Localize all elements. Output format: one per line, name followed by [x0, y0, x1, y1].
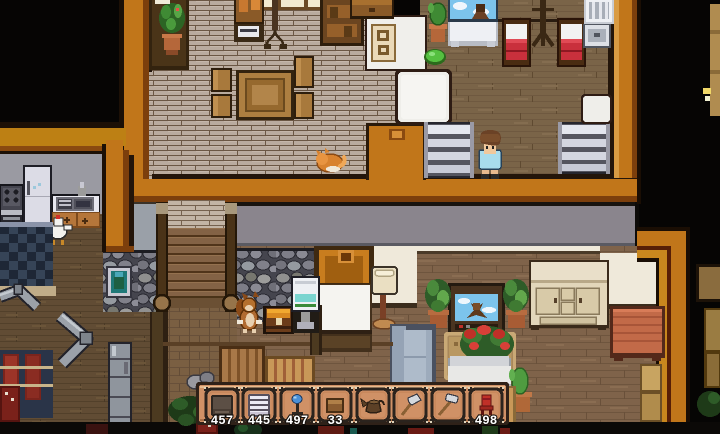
- svg-text:457: 457: [211, 414, 234, 428]
- svg-text:33: 33: [327, 414, 342, 428]
- svg-text:498: 498: [475, 414, 498, 428]
- svg-text:497: 497: [286, 414, 309, 428]
- svg-text:445: 445: [248, 414, 271, 428]
